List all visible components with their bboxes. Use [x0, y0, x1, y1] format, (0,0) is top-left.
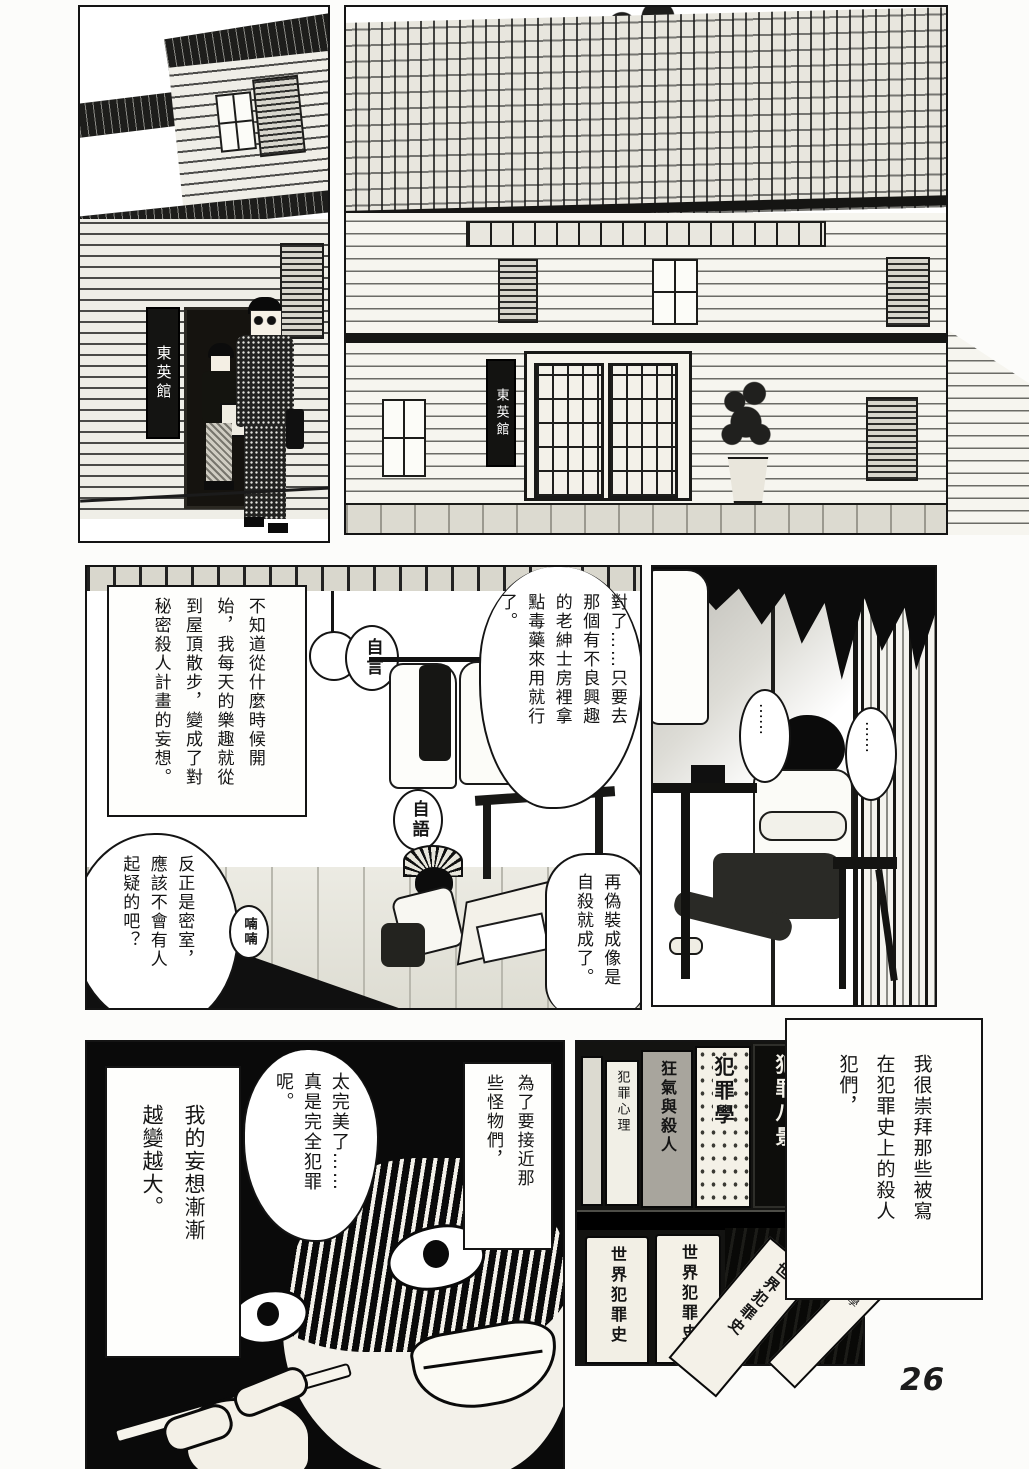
roof-main — [344, 7, 948, 223]
book-criminal-psych: 犯罪心理 — [605, 1060, 639, 1206]
second-floor-shutter-left — [498, 259, 538, 323]
entrance-door-left — [534, 363, 604, 499]
man-briefcase — [286, 409, 304, 449]
lamp-cord — [331, 591, 334, 635]
facade-bleed-right — [948, 330, 1029, 535]
uniform-dark — [419, 665, 451, 761]
panel-room-plotting: 自言 不知道從什麼時候開始，我每天的樂趣就從到屋頂散步，變成了對秘密殺人計畫的妄… — [85, 565, 642, 1010]
narration-delusion: 我的妄想漸漸越變越大。 — [105, 1066, 241, 1358]
potted-plant — [714, 377, 778, 503]
inn-sign-right: 東英館 — [486, 359, 516, 467]
man-in-suit — [230, 297, 300, 537]
inn-sign-right-text: 東英館 — [495, 388, 508, 439]
side-desk-leg — [681, 793, 690, 979]
bubble-silence-a: …… — [739, 689, 791, 783]
book-criminology: 犯罪學 — [695, 1046, 751, 1208]
stone-base — [346, 503, 948, 535]
panel-street-corner: 東英館 — [78, 5, 330, 543]
bubble-suicide-text: 再偽裝成像是自殺就成了。 — [569, 873, 623, 1001]
boy2-trousers — [381, 923, 425, 967]
eaves-band — [346, 333, 948, 343]
label-mutter-text: 喃喃 — [243, 917, 256, 947]
narration-admire-text: 我很崇拜那些被寫在犯罪史上的殺人犯們， — [828, 1054, 939, 1224]
page-number: 26 — [900, 1362, 945, 1398]
book-criminology-title: 犯罪學 — [713, 1056, 733, 1128]
bubble-silence-a-text: …… — [757, 703, 773, 767]
book-madness-murder-title: 狂氣與殺人 — [659, 1060, 675, 1155]
plant-pot — [726, 457, 770, 503]
label-mutter: 喃喃 — [229, 905, 269, 959]
bubble-locked-room-text: 反正是密室，應該不會有人起疑的吧？ — [115, 855, 198, 977]
figure-crossed-arms — [759, 811, 847, 841]
narration-monsters-text: 為了要接近那些怪物們， — [477, 1074, 538, 1204]
hanging-coat — [651, 569, 709, 725]
man-shoes — [244, 517, 264, 527]
bubble-silence-b-text: …… — [863, 721, 879, 785]
chair-leg-a — [839, 869, 846, 989]
narration-admire: 我很崇拜那些被寫在犯罪史上的殺人犯們， — [785, 1018, 983, 1300]
window-shutter-upper — [252, 75, 306, 157]
book-spine-blank — [581, 1056, 603, 1206]
narration-monsters: 為了要接近那些怪物們， — [463, 1062, 553, 1250]
window-upper — [215, 91, 257, 152]
second-floor-shutter-right — [886, 257, 930, 327]
book-world-crime-1-title: 世界犯罪史 — [609, 1246, 625, 1346]
transom-window-row — [466, 221, 826, 247]
panel-sinister-grin: 為了要接近那些怪物們， 太完美了……真是完全犯罪呢。 我的妄想漸漸越變越大。 — [85, 1040, 565, 1469]
plant-foliage — [718, 377, 774, 459]
grin-pupil-left — [257, 1302, 279, 1326]
narration-rooftop-text: 不知道從什麼時候開始，我每天的樂趣就從到屋頂散步，變成了對秘密殺人計畫的妄想。 — [144, 597, 270, 797]
bubble-perfect-text: 太完美了……真是完全犯罪呢。 — [269, 1072, 353, 1210]
inn-sign-left-text: 東英館 — [156, 345, 171, 402]
second-floor-window-center — [652, 259, 698, 325]
man-glasses — [252, 316, 278, 325]
side-desk-top — [653, 783, 757, 793]
desk-item — [691, 765, 725, 783]
narration-delusion-text: 我的妄想漸漸越變越大。 — [131, 1104, 215, 1260]
book-world-crime-1: 世界犯罪史 — [585, 1236, 649, 1364]
manga-page: 東英館 — [0, 0, 1029, 1469]
first-floor-shutter-right — [866, 397, 918, 481]
book-madness-murder: 狂氣與殺人 — [641, 1050, 693, 1208]
bubble-locked-room: 反正是密室，應該不會有人起疑的吧？ — [85, 833, 239, 1010]
bubble-suicide: 再偽裝成像是自殺就成了。 — [545, 853, 642, 1010]
man-trousers — [244, 425, 286, 519]
man-shoe-right — [268, 523, 288, 533]
bubble-poison-text: 對了……只要去那個有不良興趣的老紳士房裡拿點毒藥來用就行了。 — [492, 593, 630, 731]
chair-seat — [833, 857, 897, 869]
chair-leg-b — [875, 869, 898, 981]
bubble-poison: 對了……只要去那個有不良興趣的老紳士房裡拿點毒藥來用就行了。 — [479, 567, 642, 809]
panel-inn-facade: 東英館 — [344, 5, 948, 535]
first-floor-window-left — [382, 399, 426, 477]
narration-rooftop: 不知道從什麼時候開始，我每天的樂趣就從到屋頂散步，變成了對秘密殺人計畫的妄想。 — [107, 585, 307, 817]
panel-sitting-thought: …… …… — [651, 565, 937, 1007]
book-criminal-psych-title: 犯罪心理 — [616, 1070, 629, 1134]
inn-sign-left: 東英館 — [146, 307, 180, 439]
bubble-silence-b: …… — [845, 707, 897, 801]
boy-trousers — [206, 423, 232, 481]
grin-pupil-right — [423, 1240, 449, 1268]
entrance-door-right — [608, 363, 678, 499]
boy-face — [211, 356, 230, 372]
